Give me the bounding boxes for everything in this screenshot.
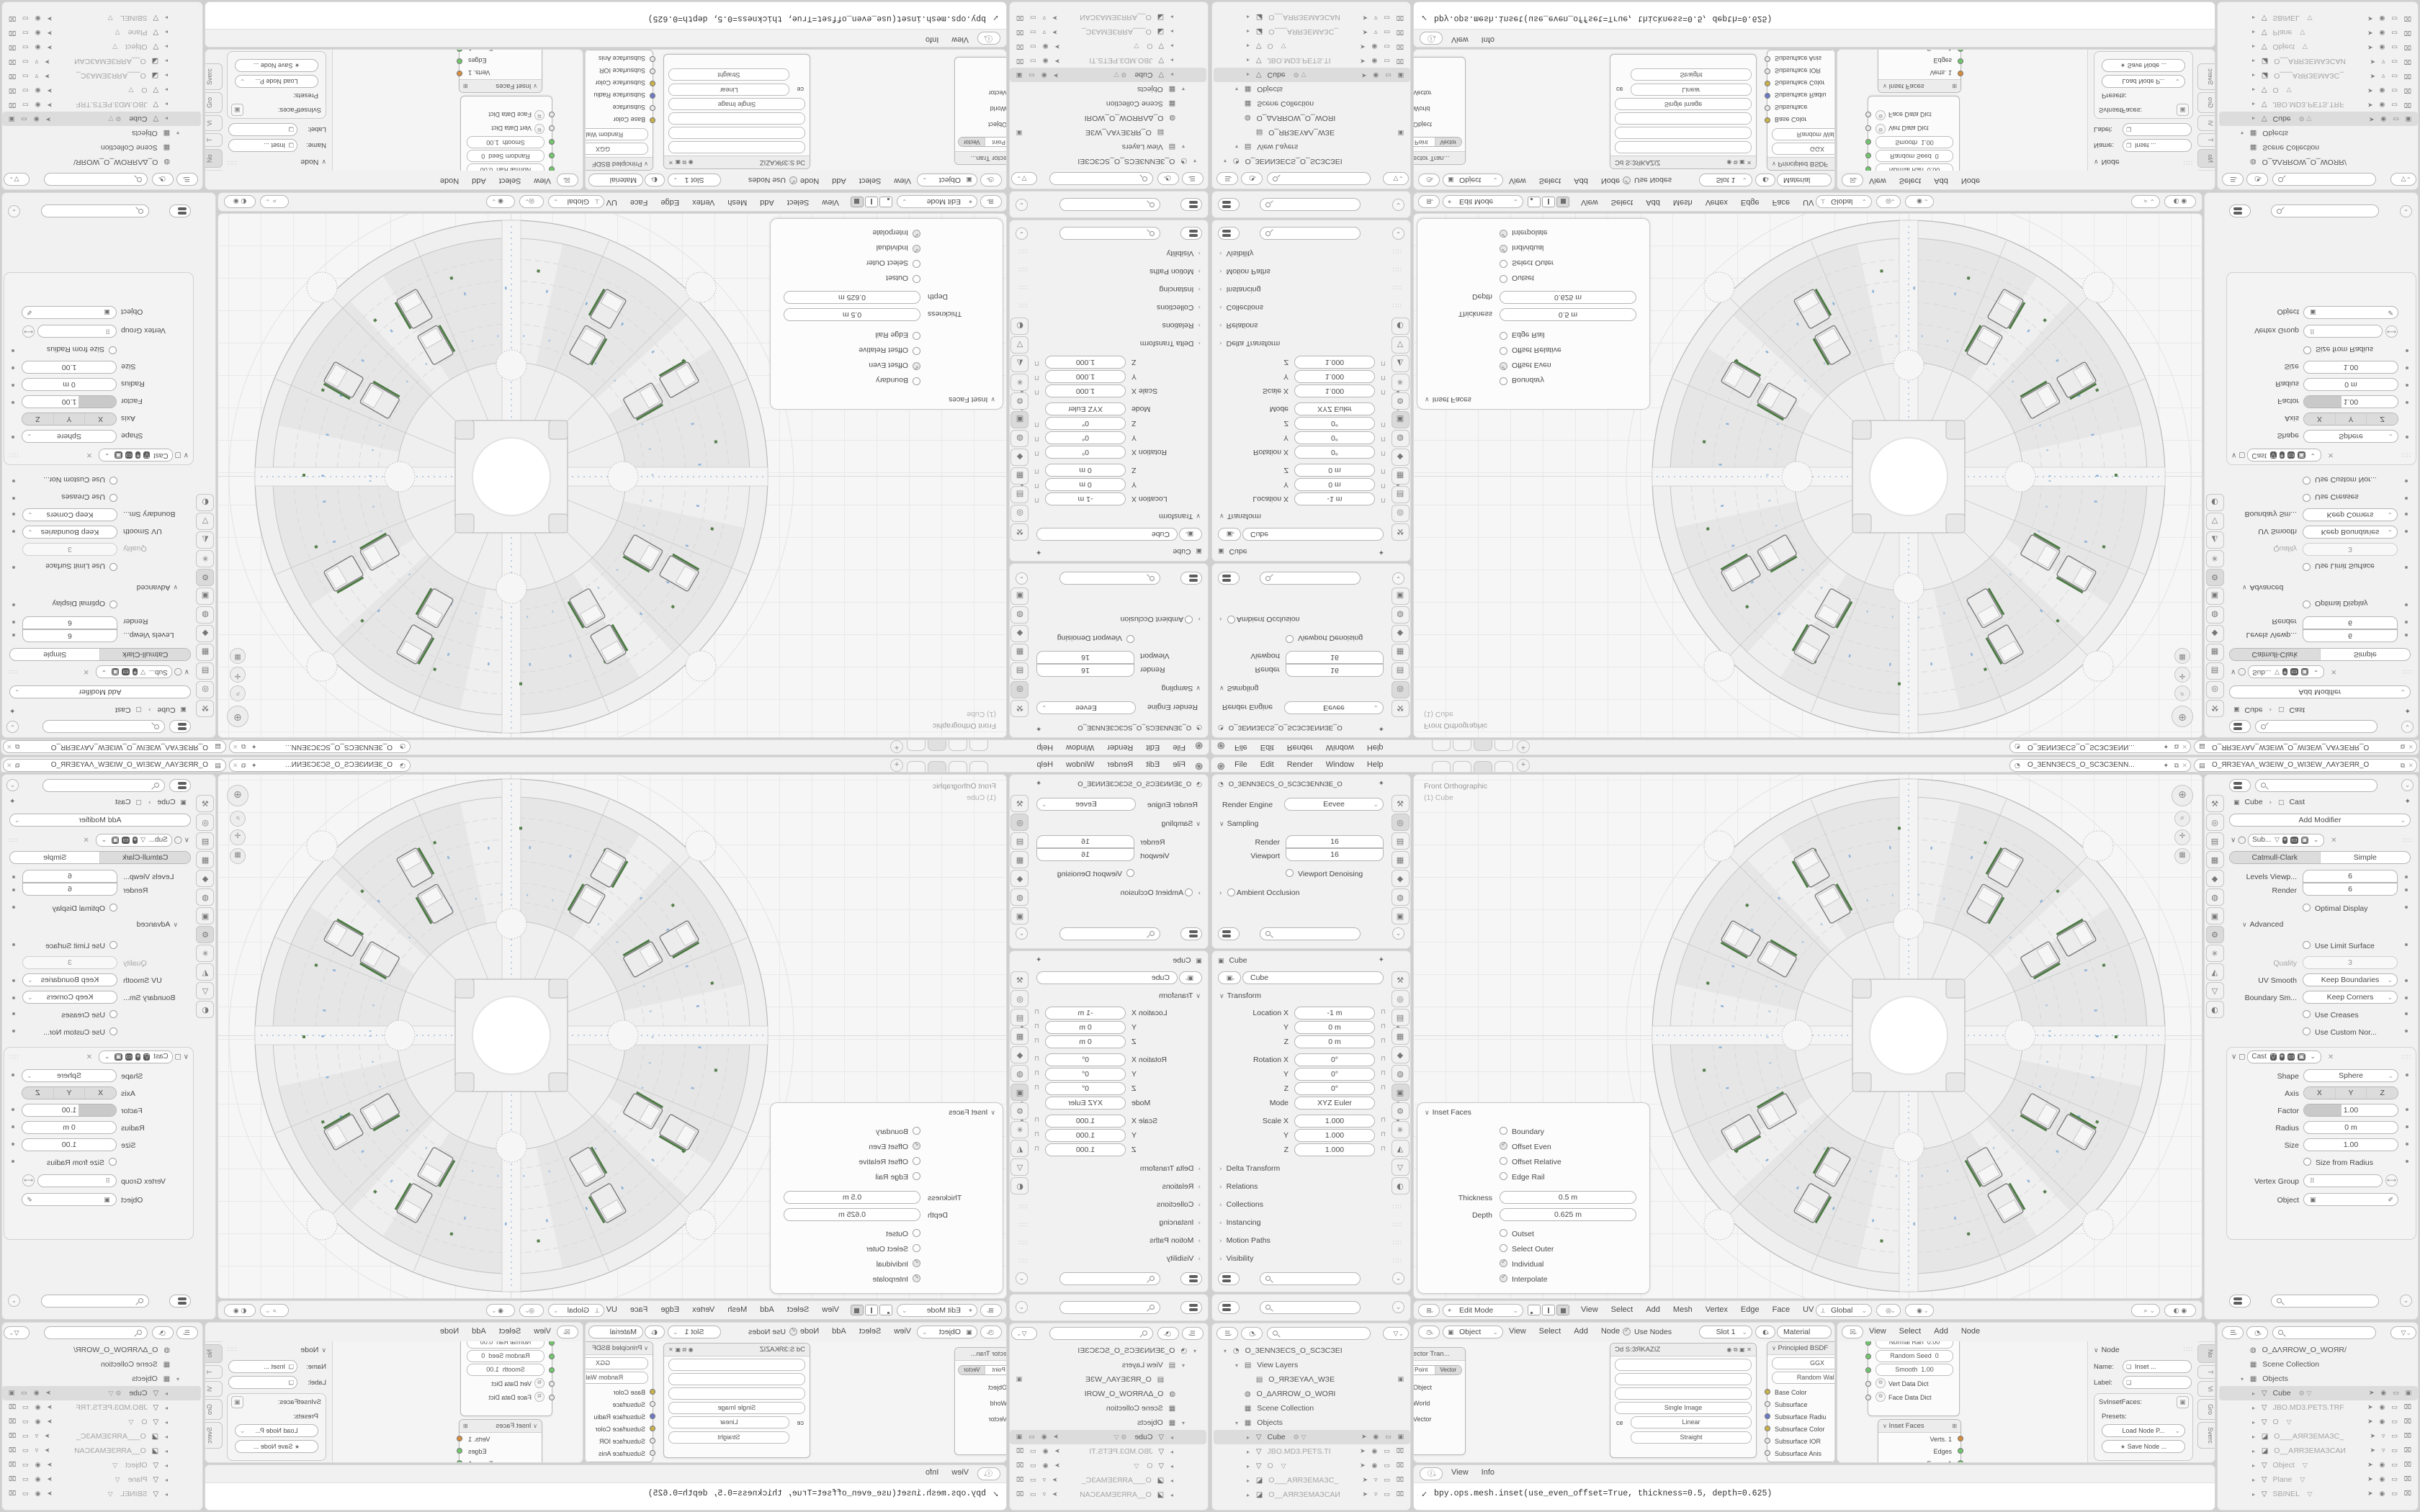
outliner-item-label[interactable]: O___AЯRЗEMAЗC_ (76, 1432, 146, 1441)
use-nodes-checkbox[interactable] (1623, 1328, 1631, 1336)
vt-row[interactable]: Object (1414, 1380, 1466, 1395)
outliner-visibility-icons[interactable]: ➤ ◉ ▭ ▣ (6, 1386, 51, 1400)
outliner-scene-button[interactable]: ◔ (152, 173, 174, 186)
expand-icon[interactable]: ▸ (1247, 53, 1254, 67)
use-custom-normals-row[interactable]: Use Custom Nor... (2303, 472, 2411, 487)
breadcrumb-object[interactable]: Cube (157, 706, 175, 714)
properties-tab[interactable]: ▤ (1011, 486, 1029, 503)
expand-icon[interactable]: ▸ (2252, 68, 2259, 82)
panel-grip[interactable]: ∷∷ (227, 158, 236, 166)
size-from-radius-checkbox[interactable] (109, 1158, 117, 1166)
outliner-visibility-icons[interactable]: ➤ ◉ ▭ ⌧ (6, 1458, 53, 1472)
filter-toggle[interactable] (169, 779, 191, 792)
levels-render-field[interactable]: 6 (2303, 883, 2398, 896)
select-mode-face[interactable] (1556, 1305, 1569, 1315)
editor-type-button[interactable]: ⊞ (1418, 195, 1440, 208)
properties-search[interactable] (2255, 779, 2378, 792)
bsdf-socket-row[interactable]: Base Color (1767, 114, 1835, 126)
bsdf-socket-row[interactable]: Subsurface Radiu (585, 89, 653, 102)
subdiv-modifier-header[interactable]: ∨ ◯ Sub... ▽⌖▭▣ ⌄ ✕ (2231, 834, 2337, 848)
sv-out-row[interactable]: Verts. 1 (460, 1433, 542, 1445)
properties-tab[interactable]: ⚙ (197, 569, 215, 586)
properties-tab[interactable]: ▦ (1011, 851, 1029, 868)
transform-value-field[interactable]: 0 m (1045, 1021, 1126, 1034)
options-button[interactable]: ⌄ (2401, 779, 2414, 791)
proportional-edit-button[interactable]: ◉ (1905, 1304, 1934, 1317)
node-header-icons[interactable]: ◉ ⧉ ▣ ✕ (1726, 1344, 1752, 1356)
breadcrumb-modifier[interactable]: Cast (2289, 706, 2305, 714)
close-icon[interactable]: ✕ (2408, 760, 2414, 772)
outliner-visibility-icons[interactable]: ➤ ▿ ▭ ⌧ (6, 1429, 50, 1444)
cast-modifier-header[interactable]: ∨ ▢ Cast ▽⌖▭▣ ⌄ ✕ (2231, 1050, 2334, 1065)
vertex-group-field[interactable]: ⠿ (37, 1174, 117, 1187)
axis-gizmo[interactable]: ⊕ (227, 785, 248, 806)
outliner-row[interactable]: ▸ ◪ O___AЯRЗEMAЗC_ ➤ ▿ ▭ ⌧ (2219, 1429, 2418, 1444)
show-render-icon[interactable]: ▣ (2301, 837, 2309, 844)
outliner-item-label[interactable]: O (1147, 42, 1152, 50)
outliner-visibility-icons[interactable]: ➤ ▿ ▭ ⌧ (1014, 24, 1058, 39)
transform-value-field[interactable]: 1.000 (1045, 1129, 1126, 1142)
properties-tab[interactable]: ▽ (1391, 336, 1410, 354)
outliner-visibility-icons[interactable]: ➤ ◉ ▭ ⌧ (1014, 1459, 1060, 1473)
sverchok-canvas[interactable]: Normal Ran 0.00 Random Seed 0 Smooth 1.0… (332, 1341, 583, 1463)
ambient-occlusion-header[interactable]: › Ambient Occlusion (1121, 615, 1201, 625)
optimal-display-checkbox[interactable] (2303, 904, 2311, 912)
display-mode-button[interactable]: ☰ (1216, 1327, 1238, 1340)
snap-target-button[interactable]: ◎ (1876, 1304, 1901, 1317)
outliner-item-label[interactable]: Cube (1134, 71, 1152, 79)
outliner-search[interactable] (1049, 1327, 1153, 1340)
shader-menu-item[interactable]: Add (1574, 176, 1588, 185)
properties-search[interactable] (1059, 1272, 1160, 1285)
expand-icon[interactable]: ▸ (1166, 1431, 1173, 1445)
zoom-gizmo-icon[interactable]: ⌕ (2174, 811, 2190, 827)
socket[interactable] (549, 139, 555, 145)
cast-object-field[interactable]: ▣ ✐ (2303, 306, 2398, 319)
limit-surface-checkbox[interactable] (2303, 941, 2311, 949)
workspace-add-tab[interactable]: + (1517, 740, 1530, 753)
use-custom-normals-checkbox[interactable] (109, 477, 117, 485)
grid-gizmo-icon[interactable]: ▦ (230, 648, 246, 664)
view-layer-selector[interactable]: ▤ O_ЯRЗEYAΛ_WЗEIW_O_WIЗEW_ΛAYЗEЯR_O ⧉ ✕ (3, 740, 226, 753)
properties-tab[interactable]: ◎ (1391, 814, 1410, 831)
properties-tab[interactable]: ◎ (2206, 814, 2224, 831)
topbar-menu-item[interactable]: Help (1367, 743, 1384, 752)
expand-icon[interactable]: ▸ (2252, 111, 2259, 125)
vt-row[interactable]: Object (1414, 117, 1466, 132)
viewport-denoising-checkbox[interactable] (1286, 635, 1294, 643)
outliner-item-label[interactable]: Scene Collection (2262, 143, 2319, 152)
expand-icon[interactable]: ▸ (2252, 1430, 2259, 1444)
transform-value-field[interactable]: -1 m (1045, 492, 1126, 505)
outliner-row[interactable]: ▾ ▤ View Layers (1214, 140, 1410, 154)
object-type-chip[interactable]: ▣ (1218, 528, 1241, 541)
show-viewport-icon[interactable]: ▭ (125, 1053, 133, 1061)
inset-check-row[interactable]: Outset (1500, 270, 1644, 285)
info-menu-item[interactable]: View (1451, 35, 1469, 44)
outliner-item-label[interactable]: O__AЯRЗEMAЗCAИ (74, 1446, 146, 1455)
transform-panel-header[interactable]: ∨Transform (1159, 512, 1201, 521)
transform-value-field[interactable]: 0° (1045, 1053, 1126, 1066)
outliner-visibility-icons[interactable]: ➤ ◉ ▭ ▣ (6, 112, 51, 126)
socket[interactable] (650, 68, 655, 74)
outliner-row[interactable]: ▸ ▽ JBO.MD3.PETS.TI ➤ ◉ ▭ ⌧ (1010, 1444, 1206, 1459)
outliner-item-label[interactable]: JBO.MD3.PETS.TRF (76, 1403, 147, 1412)
node-label-field[interactable]: ❏ (228, 1376, 297, 1389)
pin-icon[interactable]: ✦ (2163, 740, 2169, 752)
topbar-menu-item[interactable]: File (1234, 743, 1247, 752)
inset-checkbox[interactable] (913, 260, 920, 268)
inset-check-row[interactable]: Offset Relative (1500, 342, 1644, 357)
bsdf-socket-row[interactable]: Subsurface Color (1767, 77, 1835, 89)
outliner-row[interactable]: ▸ ◪ O___AЯRЗEMAЗC_ ➤ ▿ ▭ ⌧ (2219, 68, 2418, 83)
properties-search[interactable] (42, 779, 165, 792)
shader-canvas[interactable]: Vector Tran... PointVector Object World … (1414, 49, 1835, 171)
properties-tab[interactable]: ⚒ (197, 700, 215, 717)
outliner-scene-button[interactable]: ◔ (152, 1326, 174, 1339)
subdiv-modifier-header[interactable]: ∨ ◯ Sub... ▽⌖▭▣ ⌄ ✕ (2231, 664, 2337, 678)
outliner-item-label[interactable]: O_ЗENNЗECS_O_SCЗCЗEI (1245, 1346, 1343, 1355)
topbar-menu-item[interactable]: Edit (1146, 743, 1160, 752)
transform-value-field[interactable]: 1.000 (1045, 1143, 1126, 1156)
move-gizmo-icon[interactable]: ✛ (230, 667, 246, 683)
outliner-row[interactable]: ▸ ▽ Object ▽ ➤ ◉ ▭ ⌧ (2219, 1458, 2418, 1472)
outliner-visibility-icons[interactable]: ➤ ▿ ▭ ⌧ (1362, 1473, 1406, 1488)
principled-bsdf-node[interactable]: ∨ Principled BSDF GGX Random Walk Base C… (585, 50, 653, 171)
properties-tab[interactable]: ▦ (1011, 1027, 1029, 1045)
outliner-row[interactable]: ▸ ▽ O ▽ ➤ ◉ ▭ ⌧ (2219, 1415, 2418, 1429)
outliner-item-label[interactable]: Objects (2262, 1374, 2288, 1383)
filter-button[interactable]: ▽ (2390, 1326, 2416, 1339)
blender-logo-icon[interactable]: ֎ (1195, 760, 1203, 773)
transform-value-field[interactable]: 1.000 (1294, 1143, 1375, 1156)
sv-data-row[interactable]: Smooth 1.00 (1868, 1364, 1959, 1377)
lock-icon[interactable]: ⊓ (1381, 449, 1386, 456)
show-editmode-icon[interactable]: ⌖ (135, 451, 140, 459)
size-from-radius-row[interactable]: Size from Radius (9, 341, 117, 356)
image-node[interactable]: Ɔd S:ЗЯKAZIZ ◉ ⧉ ▣ ✕ Single Image ce Lin… (1610, 1343, 1757, 1458)
viewport-denoising-row[interactable]: Viewport Denoising (1019, 867, 1134, 882)
properties-tab[interactable]: ◆ (1391, 625, 1410, 642)
lock-icon[interactable]: ⊓ (1034, 420, 1039, 428)
properties-tab[interactable]: ⚒ (1391, 523, 1410, 541)
sss-method-dropdown[interactable]: Random Walk (585, 1372, 648, 1384)
expand-icon[interactable]: ▸ (1166, 1488, 1173, 1503)
mesh-sphere-mandala[interactable] (1621, 213, 2197, 738)
scene-selector[interactable]: ◔ O_ЗENNЗECS_O_SCЗCЗENN... ✦ ⧉ ✕ (2009, 740, 2191, 753)
copy-icon[interactable]: ⧉ (241, 760, 246, 772)
sverchok-menu-item[interactable]: View (1869, 176, 1886, 185)
close-icon[interactable]: ✕ (6, 760, 12, 772)
outliner-item-label[interactable]: Plane (2273, 1475, 2293, 1484)
bsdf-socket-row[interactable]: Subsurface Color (585, 77, 653, 89)
options-button[interactable]: ⌄ (1392, 572, 1404, 585)
inset-checkbox[interactable] (1500, 362, 1507, 370)
outliner-row[interactable]: ◍ O_ΔΛЯROW_O_WOЯI (1214, 1387, 1410, 1401)
topbar-menu-item[interactable]: Window (1326, 760, 1354, 769)
viewport-menu-item[interactable]: Face (630, 198, 647, 207)
outliner-item-label[interactable]: O___AЯRЗEMAЗC_ (1268, 1476, 1338, 1485)
outliner-item-label[interactable]: Cube (2273, 114, 2291, 123)
image-node[interactable]: Ɔd S:ЗЯKAZIZ ◉ ⧉ ▣ ✕ Single Image ce Lin… (1610, 54, 1757, 169)
cast-name[interactable]: Cast (153, 451, 169, 459)
subdiv-modifier-header[interactable]: ∨ ◯ Sub... ▽⌖▭▣ ⌄ ✕ (83, 664, 189, 678)
options-button[interactable]: ⌄ (1392, 1301, 1404, 1313)
outliner-visibility-icons[interactable]: ➤ ▿ ▭ ⌧ (2370, 1444, 2414, 1458)
properties-tab[interactable]: ▤ (1391, 486, 1410, 503)
options-button[interactable]: ⌄ (1016, 1272, 1028, 1284)
properties-tab[interactable]: ⚙ (1011, 392, 1029, 410)
expand-icon[interactable]: ▸ (161, 1473, 168, 1488)
snap-target-button[interactable]: ◎ (519, 1304, 544, 1317)
expand-icon[interactable]: ▸ (1166, 1445, 1173, 1459)
outliner-item-label[interactable]: O_ЗENNЗECS_O_SCЗCЗEI (1077, 1346, 1175, 1355)
mesh-sphere-mandala[interactable] (223, 213, 799, 738)
outliner-row[interactable]: ▾ ▦ Objects (2, 126, 201, 140)
properties-tab[interactable]: ▣ (1011, 411, 1029, 428)
node-title[interactable]: Vector Tran... (1414, 1348, 1465, 1361)
expand-icon[interactable]: ▸ (2252, 1444, 2259, 1459)
axis-option[interactable]: X (84, 413, 116, 425)
viewport-3d[interactable]: Front Orthographic (1) Cube (218, 774, 1007, 1299)
outliner-visibility-icons[interactable]: ▣ (1014, 125, 1023, 140)
vt-type-segment[interactable]: PointVector (958, 1365, 1006, 1375)
sidebar-tab[interactable]: Gro (2197, 1399, 2215, 1420)
sidebar-tab[interactable]: T (2197, 133, 2215, 148)
render-engine-dropdown[interactable]: Eevee (1284, 701, 1384, 714)
bsdf-socket-row[interactable]: Subsurface IOR (1767, 65, 1835, 77)
properties-tab[interactable]: ⚙ (2206, 569, 2224, 586)
socket[interactable] (1958, 1460, 1963, 1463)
inset-checkbox[interactable] (1500, 1229, 1507, 1237)
info-menu-item[interactable]: Info (1482, 35, 1494, 44)
use-creases-row[interactable]: Use Creases (2303, 1008, 2411, 1023)
socket[interactable] (1765, 81, 1770, 86)
lock-icon[interactable]: ⊓ (1381, 482, 1386, 489)
lock-icon[interactable]: ⊓ (1034, 1131, 1039, 1138)
levels-viewport-field[interactable]: 6 (22, 870, 117, 883)
alpha-dropdown[interactable]: Straight (1631, 68, 1752, 81)
properties-tab[interactable]: ◭ (1011, 1140, 1029, 1157)
show-editmode-icon[interactable]: ⌖ (133, 668, 138, 675)
ambient-occlusion-header[interactable]: › Ambient Occlusion (1219, 887, 1299, 897)
expand-icon[interactable]: ▸ (161, 1459, 168, 1473)
shading-context-dropdown[interactable]: ▣ Object (917, 1326, 977, 1338)
editor-type-button[interactable]: ⓘ (977, 32, 1000, 45)
topbar-menu-item[interactable]: Help (1367, 760, 1384, 769)
shape-dropdown[interactable]: Sphere (2303, 430, 2398, 443)
colorspace-dropdown[interactable]: Linear (668, 84, 789, 96)
properties-tab[interactable]: ▣ (2206, 588, 2224, 605)
outliner-item-label[interactable]: Cube (1268, 71, 1286, 79)
filter-toggle[interactable] (1218, 572, 1240, 585)
axis-option[interactable]: Y (2336, 413, 2367, 425)
filter-toggle[interactable] (1180, 1301, 1202, 1314)
copy-icon[interactable]: ⧉ (15, 760, 19, 772)
scene-selector[interactable]: ◔ O_ЗENNЗECS_O_SCЗCЗENN... ✦ ⧉ ✕ (229, 740, 411, 753)
outliner-row[interactable]: ▤ O_ЯRЗEYAΛ_WЗE ▣ (1010, 1372, 1206, 1387)
viewport-denoising-row[interactable]: Viewport Denoising (1286, 867, 1401, 882)
filter-toggle[interactable] (1218, 927, 1240, 940)
expand-icon[interactable]: ▸ (161, 1444, 168, 1459)
socket[interactable] (1865, 112, 1871, 117)
socket[interactable] (549, 1341, 555, 1346)
outliner-row[interactable]: ▾ ▤ View Layers (1214, 1358, 1410, 1372)
properties-tab[interactable]: ◍ (1011, 430, 1029, 447)
select-mode-vertex[interactable] (1528, 197, 1541, 207)
transform-value-field[interactable]: 0° (1045, 431, 1126, 444)
outliner-visibility-icons[interactable]: ➤ ◉ ▭ ⌧ (1014, 1444, 1060, 1459)
outliner-search[interactable] (2272, 173, 2376, 186)
outliner-visibility-icons[interactable]: ➤ ◉ ▭ ⌧ (6, 1487, 53, 1501)
display-mode-button[interactable]: ☰ (176, 173, 198, 186)
expand-icon[interactable]: ▾ (1235, 1416, 1242, 1431)
inset-checkbox[interactable] (1500, 260, 1507, 268)
boundary-smooth-dropdown[interactable]: Keep Corners (2303, 991, 2398, 1004)
inset-checkbox[interactable] (913, 1142, 920, 1150)
vt-row[interactable]: World (954, 1395, 1006, 1411)
socket[interactable] (1958, 1436, 1963, 1441)
properties-tab[interactable]: ◐ (1011, 318, 1029, 335)
sverchok-menu-item[interactable]: Select (499, 176, 521, 185)
outliner-row[interactable]: ▸ ▽ Object ▽ ➤ ◉ ▭ ⌧ (2, 40, 201, 54)
info-menu-item[interactable]: View (1451, 1468, 1469, 1477)
vt-row[interactable]: Vector (954, 1411, 1006, 1427)
inset-check-row[interactable]: Offset Even (776, 357, 920, 372)
outliner-visibility-icons[interactable]: ➤ ◉ ▭ ⌧ (2367, 40, 2414, 54)
outliner-row[interactable]: ▸ ▽ JBO.MD3.PETS.TRF ➤ ◉ ▭ ⌧ (2, 97, 201, 112)
outliner-item-label[interactable]: Plane (128, 28, 148, 37)
socket[interactable] (1865, 125, 1871, 131)
inset-check-row[interactable]: Select Outer (1500, 1242, 1644, 1257)
scene-selector[interactable]: ◔ O_ЗENNЗECS_O_SCЗCЗENN... ✦ ⧉ ✕ (2009, 759, 2191, 772)
bsdf-socket-row[interactable]: Subsurface Anis (585, 1447, 653, 1459)
filter-toggle[interactable] (169, 204, 191, 217)
modifier-grip[interactable]: ∷∷ (8, 667, 17, 675)
outliner-item-label[interactable]: O (1268, 1462, 1273, 1470)
size-field[interactable]: 1.00 (2303, 361, 2398, 374)
select-mode-edge[interactable] (865, 1305, 878, 1315)
properties-tab[interactable]: ▣ (197, 588, 215, 605)
img-dropdown[interactable] (668, 112, 805, 125)
inset-checkbox[interactable] (1500, 230, 1507, 238)
radius-field[interactable]: 0 m (2303, 1121, 2398, 1134)
properties-tab[interactable]: ◎ (1011, 681, 1029, 698)
expand-icon[interactable]: ▸ (2252, 1459, 2259, 1473)
outliner-visibility-icons[interactable]: ➤ ◉ ▭ ▣ (1361, 1430, 1406, 1444)
inset-checkbox[interactable] (913, 362, 920, 370)
expand-icon[interactable]: ▾ (172, 125, 179, 140)
outliner-row[interactable]: ▸ ▽ SBINEL ▽ ➤ ◉ ▭ ⌧ (2, 11, 201, 25)
workspace-tab[interactable] (907, 739, 926, 751)
expand-icon[interactable]: ▸ (2252, 10, 2259, 24)
outliner-visibility-icons[interactable]: ➤ ◉ ▭ ⌧ (2367, 1415, 2414, 1429)
sv-data-node[interactable]: Normal Ran 0.00 Random Seed 0 Smooth 1.0… (1868, 1341, 1960, 1416)
socket[interactable] (1765, 1389, 1770, 1395)
properties-search[interactable] (1260, 198, 1361, 211)
size-field[interactable]: 1.00 (22, 361, 117, 374)
node-image-button[interactable]: ▣ (231, 1396, 243, 1408)
expand-icon[interactable]: ▸ (1247, 9, 1254, 24)
socket[interactable] (1958, 58, 1963, 64)
outliner-item-label[interactable]: O_ΔΛЯROW_O_WOЯI (1257, 114, 1336, 122)
expand-icon[interactable]: ▸ (161, 68, 168, 82)
expand-icon[interactable]: ▾ (1224, 153, 1231, 168)
properties-tab[interactable]: ◐ (2206, 494, 2224, 511)
properties-search[interactable] (41, 204, 149, 217)
properties-tab[interactable]: ◎ (1011, 990, 1029, 1007)
view-layer-selector[interactable]: ▤ O_ЯRЗEYAΛ_WЗEIW_O_WIЗEW_ΛAYЗEЯR_O ⧉ ✕ (2194, 740, 2417, 753)
display-mode-button[interactable]: ☰ (1216, 172, 1238, 185)
collapsed-panel-header[interactable]: ›Relations∷∷ (1219, 312, 1405, 330)
object-name-field[interactable]: Cube (1242, 528, 1384, 541)
outliner-visibility-icons[interactable]: ➤ ◉ ▭ ⌧ (2367, 97, 2414, 112)
properties-tab[interactable]: ◍ (197, 606, 215, 624)
expand-icon[interactable]: ▾ (172, 1372, 179, 1387)
inset-check-row[interactable]: Offset Even (776, 1140, 920, 1155)
info-menu-item[interactable]: Info (926, 1468, 938, 1477)
size-from-radius-row[interactable]: Size from Radius (9, 1156, 117, 1171)
segment-option[interactable]: Point (1414, 138, 1435, 146)
save-preset-button[interactable]: ★ Save Node ... (2102, 1440, 2185, 1453)
subdiv-type-segment[interactable]: Catmull-ClarkSimple (9, 851, 191, 864)
subdiv-name[interactable]: Sub... (149, 836, 168, 844)
lock-icon[interactable]: ⊓ (1034, 1146, 1039, 1153)
viewport-3d[interactable]: Front Orthographic (1) Cube (218, 213, 1007, 738)
advanced-panel-header[interactable]: ∨Advanced (137, 920, 178, 929)
properties-tab[interactable]: ⚙ (1011, 1102, 1029, 1120)
outliner-item-label[interactable]: O_ΔΛЯROW_O_WOЯR/ (2262, 1346, 2347, 1354)
inset-checkbox[interactable] (1500, 1274, 1507, 1282)
inset-check-row[interactable]: Edge Rail (776, 1170, 920, 1185)
socket[interactable] (1865, 139, 1871, 145)
select-mode-edge[interactable] (1542, 197, 1555, 207)
properties-tab[interactable]: ◆ (197, 870, 215, 887)
socket[interactable] (549, 1395, 555, 1400)
inset-check-row[interactable]: Individual (1500, 1257, 1644, 1272)
outliner-visibility-icons[interactable]: ➤ ◉ ▭ ⌧ (1360, 39, 1406, 53)
optimal-display-row[interactable]: Optimal Display (9, 901, 117, 917)
node-label-field[interactable]: ❏ (2123, 123, 2192, 136)
socket[interactable] (1865, 1354, 1871, 1359)
viewport-menu-item[interactable]: Select (787, 1305, 810, 1314)
outliner-item-label[interactable]: JBO.MD3.PETS.TRF (2273, 100, 2344, 109)
ao-checkbox[interactable] (1227, 616, 1235, 624)
properties-tab[interactable]: ◐ (1011, 1177, 1029, 1194)
shader-menu-item[interactable]: Node (800, 1327, 819, 1336)
expand-icon[interactable]: ▸ (1247, 1459, 1254, 1474)
properties-tab[interactable]: ◎ (1011, 505, 1029, 522)
outliner-row[interactable]: ▸ ◪ O__AЯRЗEMAЗCAИ ➤ ▿ ▭ ⌧ (2219, 1444, 2418, 1458)
show-viewport-icon[interactable]: ▭ (122, 668, 130, 675)
shader-menu-item[interactable]: Add (1574, 1327, 1588, 1336)
mode-dropdown[interactable]: ⌖ Edit Mode (897, 195, 977, 208)
properties-tab[interactable]: ◆ (1391, 449, 1410, 466)
node-title[interactable]: ∨ Principled BSDF (1767, 157, 1835, 170)
viewport-menu-item[interactable]: Vertex (1706, 198, 1728, 207)
properties-tab[interactable]: ▤ (1391, 662, 1410, 680)
outliner-item-label[interactable]: O___AЯRЗEMAЗC_ (1082, 27, 1152, 36)
expand-icon[interactable]: ▸ (161, 111, 168, 125)
outliner-row[interactable]: ▸ ▽ Cube ⚙ ▽ ➤ ◉ ▭ ▣ (2, 1386, 201, 1400)
outliner-row[interactable]: ▸ ▽ Cube ⚙ ▽ ➤ ◉ ▭ ▣ (2, 112, 201, 126)
uv-smooth-dropdown[interactable]: Keep Boundaries (22, 973, 117, 986)
inset-checkbox[interactable] (1500, 1142, 1507, 1150)
topbar-menu-item[interactable]: Window (1066, 743, 1094, 752)
node-title[interactable]: ∨ Inset Faces ⊞ (1878, 1420, 1960, 1433)
shading-context-dropdown[interactable]: ▣ Object (1443, 174, 1503, 186)
zoom-gizmo-icon[interactable]: ⌕ (2174, 685, 2190, 701)
